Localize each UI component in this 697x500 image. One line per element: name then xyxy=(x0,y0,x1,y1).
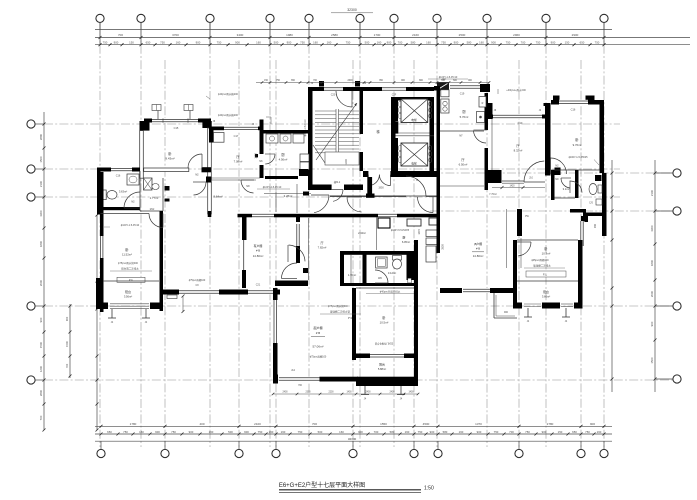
svg-text:C17: C17 xyxy=(234,134,239,138)
svg-text:500: 500 xyxy=(274,40,279,44)
svg-text:650: 650 xyxy=(580,40,585,44)
svg-text:5.88m²: 5.88m² xyxy=(378,367,386,371)
svg-text:1200: 1200 xyxy=(39,365,43,372)
svg-text:C2F: C2F xyxy=(392,94,397,97)
svg-text:160: 160 xyxy=(426,40,431,44)
svg-text:3300: 3300 xyxy=(650,225,654,232)
svg-text:4500: 4500 xyxy=(423,422,430,426)
svg-text:160: 160 xyxy=(176,40,181,44)
svg-text:2880: 2880 xyxy=(39,133,43,140)
svg-text:3.63m²: 3.63m² xyxy=(119,190,127,194)
svg-text:160: 160 xyxy=(139,430,144,434)
svg-text:500: 500 xyxy=(228,430,233,434)
svg-text:8.32m²: 8.32m² xyxy=(514,149,523,153)
svg-text:1370: 1370 xyxy=(475,422,482,426)
svg-text:P1L: P1L xyxy=(543,274,548,277)
svg-text:400: 400 xyxy=(199,422,204,426)
svg-text:C10: C10 xyxy=(518,121,523,125)
svg-text:14.80m²: 14.80m² xyxy=(473,254,484,258)
svg-text:电梯: 电梯 xyxy=(411,118,417,122)
svg-text:750: 750 xyxy=(595,40,600,44)
svg-text:7.70m²: 7.70m² xyxy=(489,193,497,196)
svg-text:ϕ75pvc雨水管400: ϕ75pvc雨水管400 xyxy=(118,261,138,265)
svg-text:阳台: 阳台 xyxy=(125,289,131,294)
svg-text:1700: 1700 xyxy=(374,33,381,37)
svg-text:C16: C16 xyxy=(116,175,121,178)
svg-text:900: 900 xyxy=(594,223,597,228)
svg-text:1:50: 1:50 xyxy=(424,486,434,492)
svg-text:700: 700 xyxy=(118,33,123,37)
svg-text:R: R xyxy=(482,102,484,105)
svg-text:500: 500 xyxy=(365,40,370,44)
svg-text:750: 750 xyxy=(494,430,499,434)
svg-text:750: 750 xyxy=(441,40,446,44)
svg-text:500: 500 xyxy=(318,430,323,434)
svg-text:ϕ40pvc雨水箱200: ϕ40pvc雨水箱200 xyxy=(218,92,238,96)
svg-text:2580: 2580 xyxy=(331,33,338,37)
svg-text:玻璃棚二次排水管: 玻璃棚二次排水管 xyxy=(330,310,351,314)
svg-text:1420: 1420 xyxy=(509,186,515,188)
svg-text:2780: 2780 xyxy=(547,422,554,426)
svg-text:# B: # B xyxy=(256,249,260,253)
svg-text:5.76m²: 5.76m² xyxy=(460,115,469,119)
svg-text:1500: 1500 xyxy=(39,156,43,163)
svg-text:M12: M12 xyxy=(150,209,155,211)
svg-text:32300: 32300 xyxy=(347,8,357,12)
svg-text:900: 900 xyxy=(235,40,240,44)
svg-text:WD: WD xyxy=(378,277,382,280)
svg-text:10.5m²: 10.5m² xyxy=(380,321,389,325)
svg-text:750: 750 xyxy=(585,430,590,434)
svg-text:1500: 1500 xyxy=(65,341,69,347)
svg-text:750: 750 xyxy=(346,40,351,44)
svg-text:11.52m²: 11.52m² xyxy=(122,253,132,257)
svg-text:750: 750 xyxy=(298,430,303,434)
svg-text:ϕ40pvc雨水箱200: ϕ40pvc雨水箱200 xyxy=(218,113,238,117)
svg-text:1780: 1780 xyxy=(130,422,137,426)
svg-text:2100: 2100 xyxy=(39,180,43,187)
svg-text:ϕ100Y-1.5-PC10: ϕ100Y-1.5-PC10 xyxy=(121,224,140,227)
svg-text:580: 580 xyxy=(467,40,472,44)
svg-text:7.82m²: 7.82m² xyxy=(318,246,327,250)
svg-text:57.06m²: 57.06m² xyxy=(312,345,323,349)
svg-text:C20: C20 xyxy=(331,94,336,97)
svg-text:ϕ40pvc空调不排水: ϕ40pvc空调不排水 xyxy=(380,289,401,293)
svg-text:2960: 2960 xyxy=(513,33,520,37)
svg-text:1500: 1500 xyxy=(39,341,43,348)
svg-text:900: 900 xyxy=(542,430,547,434)
svg-text:700: 700 xyxy=(521,40,526,44)
svg-text:+4/0pvc+雨水200: +4/0pvc+雨水200 xyxy=(506,88,526,92)
svg-text:PY2: PY2 xyxy=(348,318,353,320)
svg-text:2200: 2200 xyxy=(328,392,334,394)
svg-text:700: 700 xyxy=(39,415,43,420)
svg-text:2400: 2400 xyxy=(365,392,371,394)
svg-text:阳台雨二次排水: 阳台雨二次排水 xyxy=(121,267,139,271)
svg-text:900: 900 xyxy=(430,430,435,434)
svg-text:2400: 2400 xyxy=(389,392,395,394)
svg-text:C16: C16 xyxy=(571,108,576,112)
svg-text:160: 160 xyxy=(377,40,382,44)
svg-text:900: 900 xyxy=(504,311,509,314)
svg-text:750: 750 xyxy=(258,430,263,434)
svg-text:ϕ75pvc雨水管400: ϕ75pvc雨水管400 xyxy=(328,304,348,308)
svg-text:580: 580 xyxy=(443,430,448,434)
svg-text:ϕ100Y-1-5-PC10: ϕ100Y-1-5-PC10 xyxy=(305,119,307,137)
svg-text:750: 750 xyxy=(217,40,222,44)
svg-text:C21: C21 xyxy=(256,284,261,287)
svg-text:9.76m²: 9.76m² xyxy=(573,143,582,147)
svg-text:梯M-2: 梯M-2 xyxy=(334,180,341,184)
svg-text:900: 900 xyxy=(491,40,496,44)
svg-text:(8户棚: (8户棚 xyxy=(474,241,482,246)
svg-text:160: 160 xyxy=(459,430,464,434)
svg-text:1400: 1400 xyxy=(408,392,414,394)
svg-text:750: 750 xyxy=(123,430,128,434)
svg-text:C15: C15 xyxy=(174,126,179,130)
svg-text:J12: J12 xyxy=(291,369,296,372)
svg-text:阳台: 阳台 xyxy=(543,289,549,294)
svg-text:起户棚: 起户棚 xyxy=(313,325,322,330)
svg-text:900: 900 xyxy=(477,430,482,434)
svg-text:3300: 3300 xyxy=(39,210,43,217)
svg-text:3.66m²: 3.66m² xyxy=(542,295,550,299)
svg-text:900: 900 xyxy=(387,40,392,44)
svg-text:2800: 2800 xyxy=(442,244,445,250)
svg-text:2100: 2100 xyxy=(254,422,261,426)
svg-text:1.77m²: 1.77m² xyxy=(150,196,159,200)
svg-text:32300: 32300 xyxy=(348,437,357,441)
svg-text:700: 700 xyxy=(509,430,514,434)
svg-text:150: 150 xyxy=(129,40,134,44)
svg-text:2600: 2600 xyxy=(347,80,353,82)
svg-text:1950: 1950 xyxy=(378,187,384,190)
svg-text:160: 160 xyxy=(339,430,344,434)
svg-text:1500: 1500 xyxy=(255,153,258,159)
svg-text:ϕ100Y-1-5-PW25: ϕ100Y-1-5-PW25 xyxy=(568,156,588,159)
svg-text:C19: C19 xyxy=(460,93,465,96)
svg-text:160: 160 xyxy=(269,430,274,434)
svg-text:2800: 2800 xyxy=(39,389,43,396)
svg-text:1800: 1800 xyxy=(650,259,654,266)
svg-text:580: 580 xyxy=(411,40,416,44)
svg-text:阳台: 阳台 xyxy=(379,362,385,367)
svg-text:900: 900 xyxy=(551,40,556,44)
svg-text:2160: 2160 xyxy=(412,33,419,37)
svg-text:ϕ45pvc雨棚400: ϕ45pvc雨棚400 xyxy=(531,258,549,262)
svg-text:160: 160 xyxy=(327,40,332,44)
svg-text:160: 160 xyxy=(405,430,410,434)
svg-text:# B: # B xyxy=(476,247,480,251)
svg-text:700: 700 xyxy=(65,363,69,368)
svg-text:2100: 2100 xyxy=(650,189,654,196)
svg-text:700: 700 xyxy=(374,430,379,434)
svg-text:7.08m²: 7.08m² xyxy=(234,160,243,164)
svg-text:750: 750 xyxy=(525,430,530,434)
svg-text:6.50m²: 6.50m² xyxy=(459,163,468,167)
svg-text:3400: 3400 xyxy=(237,33,244,37)
svg-text:900: 900 xyxy=(189,430,194,434)
svg-text:玻璃棚二次排水: 玻璃棚二次排水 xyxy=(533,264,551,268)
svg-text:ϕ75pvc雨棚100: ϕ75pvc雨棚100 xyxy=(310,355,327,359)
svg-text:1200: 1200 xyxy=(345,159,348,165)
svg-text:160: 160 xyxy=(313,40,318,44)
svg-text:4.56m²: 4.56m² xyxy=(279,158,288,162)
svg-text:3700: 3700 xyxy=(172,33,179,37)
svg-text:ϕ100Y-4-5-PC10: ϕ100Y-4-5-PC10 xyxy=(263,186,282,189)
svg-text:750: 750 xyxy=(300,40,305,44)
svg-text:1870: 1870 xyxy=(418,229,421,235)
svg-text:160: 160 xyxy=(209,430,214,434)
svg-text:10.3m²: 10.3m² xyxy=(542,252,551,256)
svg-text:900: 900 xyxy=(244,430,249,434)
svg-text:160: 160 xyxy=(597,430,602,434)
svg-text:700: 700 xyxy=(312,422,317,426)
svg-text:1980: 1980 xyxy=(286,33,293,37)
svg-text:3.28m²: 3.28m² xyxy=(284,194,293,198)
svg-text:有户棚: 有户棚 xyxy=(254,243,263,248)
svg-text:900: 900 xyxy=(358,430,363,434)
svg-text:14.80m²: 14.80m² xyxy=(253,254,264,258)
svg-text:150: 150 xyxy=(565,40,570,44)
svg-text:650: 650 xyxy=(107,430,112,434)
svg-text:# B: # B xyxy=(316,331,320,335)
svg-text:1800: 1800 xyxy=(39,240,43,247)
svg-text:160: 160 xyxy=(479,40,484,44)
svg-text:厅: 厅 xyxy=(320,241,323,245)
svg-text:900: 900 xyxy=(39,317,43,322)
svg-text:900: 900 xyxy=(155,430,160,434)
svg-text:750: 750 xyxy=(171,430,176,434)
svg-text:150: 150 xyxy=(558,430,563,434)
svg-text:900: 900 xyxy=(590,422,595,426)
svg-text:厨: 厨 xyxy=(403,235,406,240)
svg-text:650: 650 xyxy=(572,430,577,434)
svg-text:E6+G+E2户型十七层平面大样图: E6+G+E2户型十七层平面大样图 xyxy=(279,481,365,489)
svg-text:700: 700 xyxy=(398,40,403,44)
svg-text:750: 750 xyxy=(506,40,511,44)
svg-text:900: 900 xyxy=(650,321,654,326)
svg-text:6.05m²: 6.05m² xyxy=(402,240,410,244)
svg-text:1.70m²: 1.70m² xyxy=(348,273,356,277)
svg-text:3.12m²: 3.12m² xyxy=(388,271,396,275)
svg-text:C/S: C/S xyxy=(589,203,593,205)
svg-text:2400: 2400 xyxy=(282,392,288,394)
svg-text:8.64m²: 8.64m² xyxy=(213,195,222,199)
svg-text:电梯: 电梯 xyxy=(411,162,417,166)
svg-text:2900: 2900 xyxy=(572,33,579,37)
svg-text:160: 160 xyxy=(281,430,286,434)
svg-text:900: 900 xyxy=(287,40,292,44)
svg-text:ϕ100Y-1-5-PC10: ϕ100Y-1-5-PC10 xyxy=(439,76,458,79)
svg-text:ϕ75pvc雨棚100: ϕ75pvc雨棚100 xyxy=(189,278,206,282)
svg-text:1500: 1500 xyxy=(650,357,654,364)
svg-text:900: 900 xyxy=(114,40,119,44)
svg-text:3.56m²: 3.56m² xyxy=(124,295,132,299)
svg-text:160: 160 xyxy=(256,40,261,44)
svg-text:2000: 2000 xyxy=(650,290,654,297)
svg-text:750: 750 xyxy=(160,40,165,44)
svg-text:ϕ100Y-5.5-PW25: ϕ100Y-5.5-PW25 xyxy=(391,229,410,232)
svg-text:750: 750 xyxy=(418,430,423,434)
svg-text:2300: 2300 xyxy=(305,392,311,394)
svg-text:900: 900 xyxy=(454,40,459,44)
svg-text:1400: 1400 xyxy=(346,392,352,394)
svg-text:750: 750 xyxy=(536,40,541,44)
svg-text:2000: 2000 xyxy=(39,279,43,286)
svg-text:580: 580 xyxy=(390,430,395,434)
svg-text:750: 750 xyxy=(103,40,108,44)
svg-text:2.34m²: 2.34m² xyxy=(358,232,366,235)
svg-text:9.43m²: 9.43m² xyxy=(165,157,174,161)
svg-text:900: 900 xyxy=(196,40,201,44)
svg-text:650: 650 xyxy=(146,40,151,44)
svg-text:900: 900 xyxy=(65,316,69,321)
svg-text:2500: 2500 xyxy=(459,33,466,37)
svg-text:1550: 1550 xyxy=(380,422,387,426)
